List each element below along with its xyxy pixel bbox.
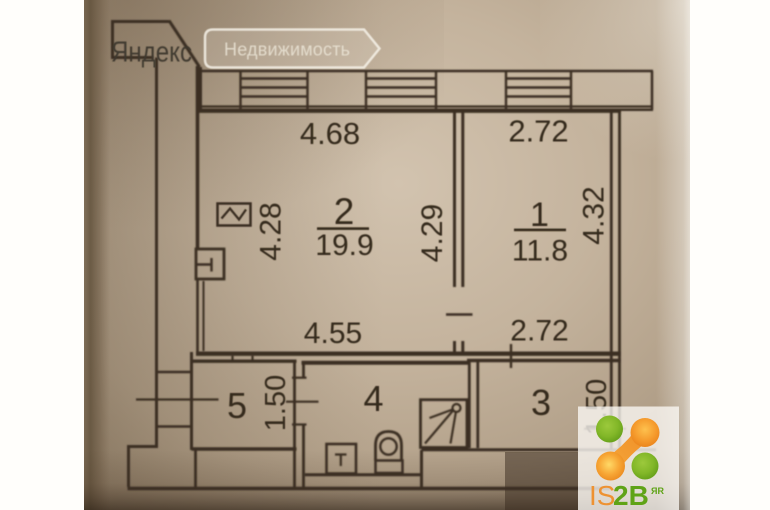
svg-text:1: 1: [530, 196, 549, 234]
svg-text:Яндекс: Яндекс: [111, 37, 192, 69]
svg-text:4.55: 4.55: [304, 317, 362, 350]
svg-text:2: 2: [334, 191, 355, 232]
svg-text:4.28: 4.28: [254, 202, 287, 260]
svg-text:11.8: 11.8: [512, 235, 568, 268]
svg-text:2B: 2B: [613, 480, 649, 510]
svg-text:4.29: 4.29: [416, 204, 449, 262]
svg-text:Недвижимость: Недвижимость: [224, 40, 350, 60]
svg-text:2.72: 2.72: [508, 114, 568, 149]
svg-text:5: 5: [227, 385, 247, 426]
svg-text:1.50: 1.50: [260, 375, 292, 431]
svg-text:4: 4: [363, 378, 383, 419]
svg-text:4.68: 4.68: [300, 116, 360, 151]
svg-text:3: 3: [531, 382, 551, 423]
svg-text:ЯR: ЯR: [651, 486, 664, 496]
svg-text:2.72: 2.72: [510, 315, 568, 348]
svg-text:4.32: 4.32: [578, 186, 611, 244]
svg-text:19.9: 19.9: [315, 229, 373, 262]
svg-text:IS: IS: [589, 480, 615, 510]
